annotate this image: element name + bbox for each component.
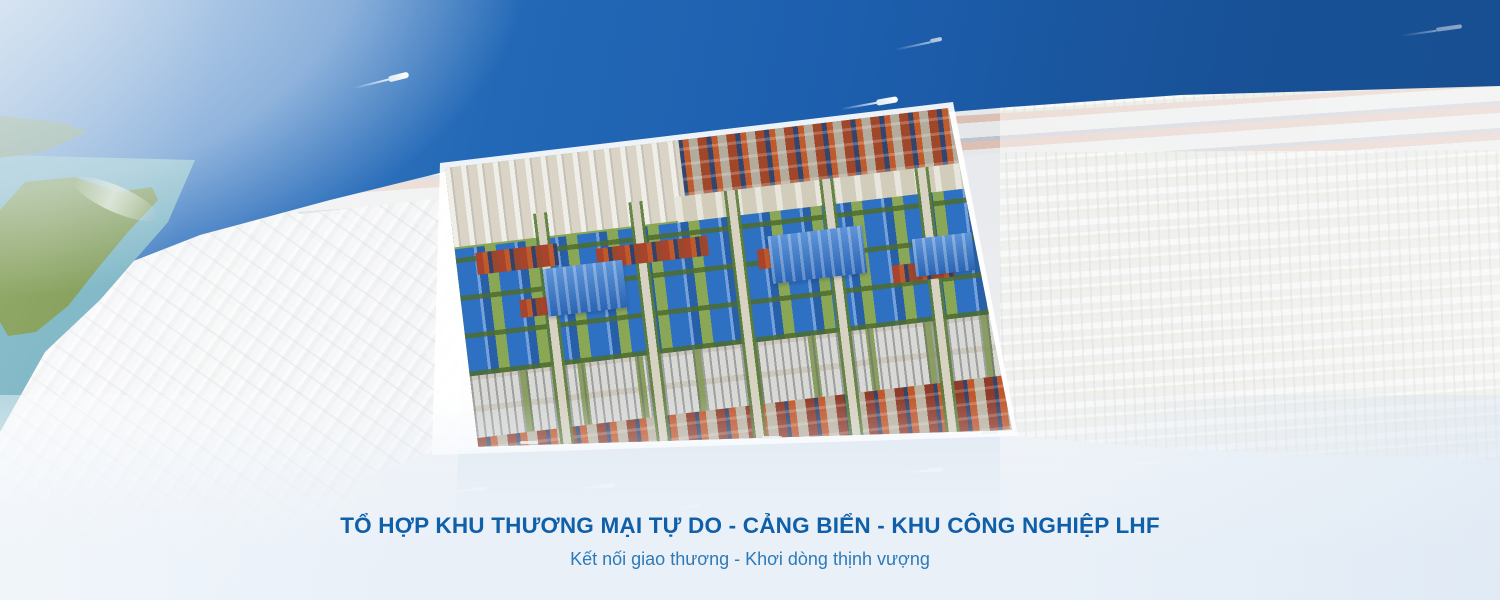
hero-banner: TỔ HỢP KHU THƯƠNG MẠI TỰ DO - CẢNG BIỂN … [0, 0, 1500, 600]
caption: TỔ HỢP KHU THƯƠNG MẠI TỰ DO - CẢNG BIỂN … [0, 0, 1500, 600]
page-title: TỔ HỢP KHU THƯƠNG MẠI TỰ DO - CẢNG BIỂN … [0, 512, 1500, 539]
tagline: Kết nối giao thương - Khơi dòng thịnh vư… [0, 548, 1500, 570]
